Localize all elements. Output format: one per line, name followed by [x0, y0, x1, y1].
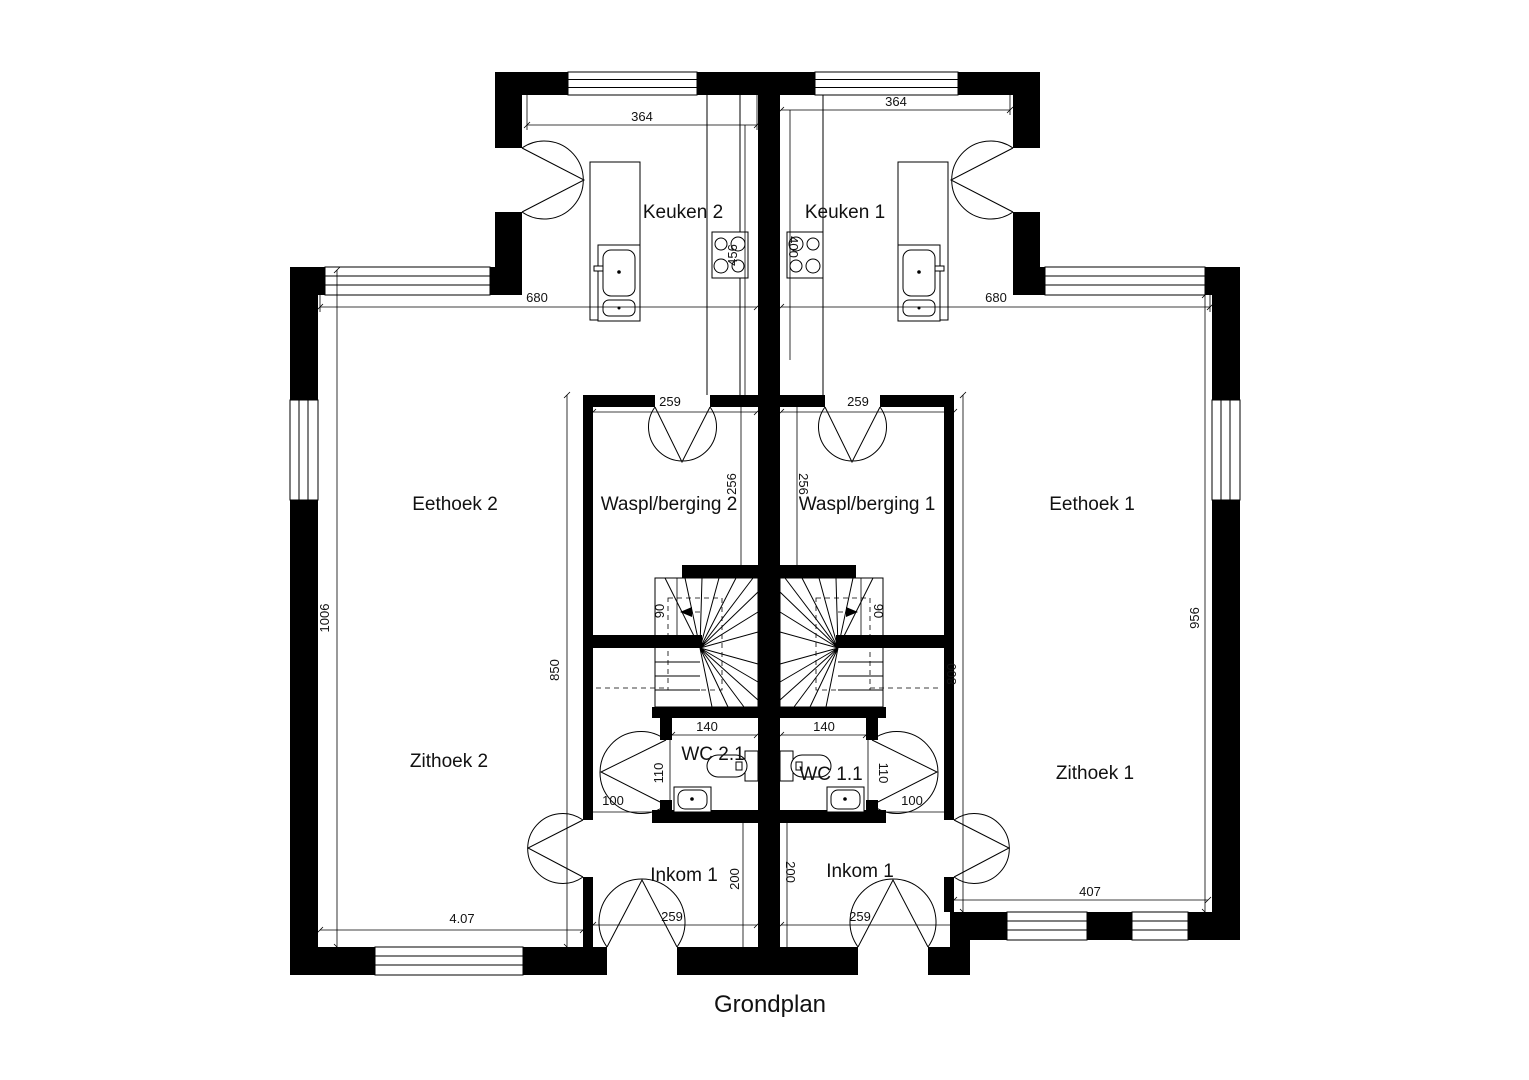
window-right-wall [1212, 400, 1240, 500]
door-zithoek-left [528, 814, 583, 884]
kitchen-island-right [898, 162, 948, 321]
party-wall [758, 72, 780, 975]
washbasin-left [674, 787, 711, 812]
dim-kitchen-depth-left: 456 [725, 244, 740, 266]
dim-entry-door-right: 259 [849, 909, 871, 924]
dim-wc-door-left: 110 [651, 763, 666, 784]
dim-entry-door-left: 259 [661, 909, 683, 924]
door-waspl-right [819, 407, 887, 462]
dim-waspl-height-right: 256 [796, 473, 811, 495]
door-zithoek-right [954, 814, 1009, 884]
door-waspl-left [649, 407, 717, 462]
dim-wc-width-right: 140 [813, 719, 835, 734]
room-label-eethoek-2: Eethoek 2 [412, 494, 498, 515]
dim-kitchen-width-left: 364 [631, 109, 653, 124]
dim-unit-width-left: 680 [526, 290, 548, 305]
room-label-keuken-2: Keuken 2 [643, 202, 723, 223]
dim-kitchen-depth-right: 400 [786, 236, 801, 258]
walls [290, 72, 1240, 975]
dim-core-height-right: 800 [944, 663, 959, 685]
room-label-waspl-berging-1: Waspl/berging 1 [799, 494, 936, 515]
room-label-inkom-left: Inkom 1 [650, 865, 718, 886]
dim-waspl-height-left: 256 [724, 473, 739, 495]
dim-hall-width-left: 100 [602, 793, 624, 808]
window-kitchen-right [815, 72, 958, 95]
plan-title: Grondplan [714, 991, 826, 1018]
dim-hall-width-right: 100 [901, 793, 923, 808]
dim-wc-width-left: 140 [696, 719, 718, 734]
room-label-inkom-right: Inkom 1 [826, 861, 894, 882]
door-kitchen-right [951, 141, 1013, 219]
window-bottom-right-a [1007, 912, 1087, 940]
dim-side-height-right: 956 [1187, 607, 1202, 629]
dim-kitchen-width-right: 364 [885, 94, 907, 109]
window-bottom-right-b [1132, 912, 1188, 940]
kitchen-island-left [590, 162, 640, 321]
room-label-waspl-berging-2: Waspl/berging 2 [601, 494, 738, 515]
floor-plan-page: Keuken 2 Keuken 1 Eethoek 2 Eethoek 1 Wa… [0, 0, 1529, 1080]
dim-inkom-height-left: 200 [727, 868, 742, 890]
floor-plan-canvas: Keuken 2 Keuken 1 Eethoek 2 Eethoek 1 Wa… [0, 0, 1529, 1080]
dim-waspl-width-right: 259 [847, 394, 869, 409]
dim-stair-walkline-right: 90 [871, 604, 886, 618]
dim-inkom-height-right: 200 [783, 861, 798, 883]
room-label-zithoek-2: Zithoek 2 [410, 751, 488, 772]
room-label-wc-2-1: WC 2.1 [681, 744, 744, 765]
window-top-right [1045, 267, 1205, 295]
window-kitchen-left [568, 72, 697, 95]
room-label-keuken-1: Keuken 1 [805, 202, 885, 223]
room-label-zithoek-1: Zithoek 1 [1056, 763, 1134, 784]
dim-zithoek-width-left: 4.07 [449, 911, 474, 926]
dim-core-height-left: 850 [547, 659, 562, 681]
window-bottom-left [375, 947, 523, 975]
washbasin-right [827, 787, 864, 812]
dim-stair-walkline-left: 90 [652, 604, 667, 618]
room-label-eethoek-1: Eethoek 1 [1049, 494, 1135, 515]
window-top-left [325, 267, 490, 295]
dim-unit-width-right: 680 [985, 290, 1007, 305]
dim-side-height-left: 1006 [317, 604, 332, 633]
dim-zithoek-width-right: 407 [1079, 884, 1101, 899]
window-left-wall [290, 400, 318, 500]
dim-wc-door-right: 110 [876, 763, 891, 784]
door-kitchen-left [522, 141, 584, 219]
room-label-wc-1-1: WC 1.1 [799, 764, 862, 785]
dim-waspl-width-left: 259 [659, 394, 681, 409]
